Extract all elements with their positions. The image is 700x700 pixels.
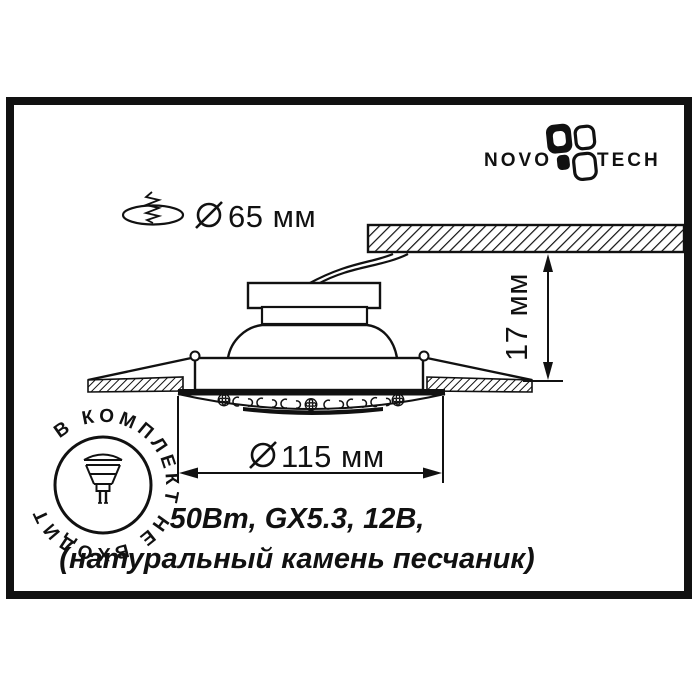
trim-flange-left: [88, 377, 183, 392]
technical-drawing: NOVO TECH 65 мм: [0, 0, 700, 700]
trim-diameter-label: 115 мм: [281, 439, 385, 474]
wordmark-tech: TECH: [597, 150, 661, 171]
spec-line-1: 50Вm, GX5.3, 12В,: [170, 503, 425, 535]
clip-pivot-left: [191, 352, 200, 361]
lamp-holder-neck: [262, 307, 367, 324]
clip-pivot-right: [420, 352, 429, 361]
cutout-diameter-label: 65 мм: [228, 199, 316, 234]
wordmark-novo: NOVO: [484, 150, 552, 171]
housing-dome: [228, 325, 397, 358]
recess-depth-label: 17 мм: [499, 273, 534, 361]
trim-ring-rim: [178, 389, 445, 396]
diagram-page: NOVO TECH 65 мм: [0, 0, 700, 700]
fixture-body: [195, 358, 423, 390]
ceiling-section: [368, 225, 684, 252]
spec-line-2: (натуральный камень песчаник): [59, 543, 534, 575]
driver-box: [248, 283, 380, 308]
